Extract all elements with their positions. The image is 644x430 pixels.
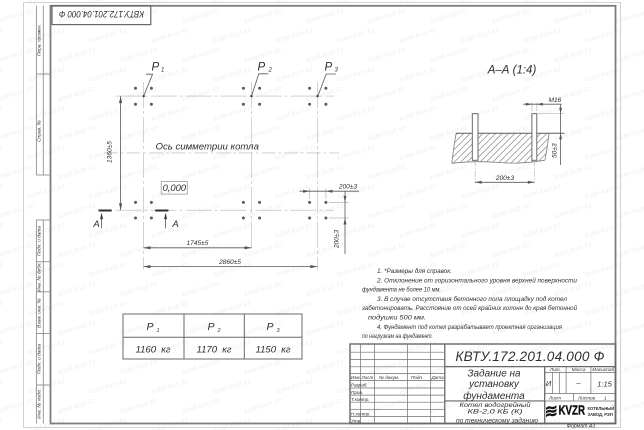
svg-text:1:15: 1:15: [597, 380, 612, 389]
svg-text:Н.контр.: Н.контр.: [351, 412, 370, 417]
svg-text:1: 1: [157, 328, 160, 334]
svg-text:Взам. инв. №: Взам. инв. №: [36, 298, 42, 328]
svg-text:200±3: 200±3: [495, 175, 515, 182]
svg-text:Котел водогрейный: Котел водогрейный: [460, 402, 532, 409]
svg-text:1. *Размеры для справок.: 1. *Размеры для справок.: [377, 267, 452, 275]
svg-text:Подп. и дата: Подп. и дата: [36, 344, 42, 374]
svg-text:Лист: Лист: [361, 375, 374, 380]
svg-text:P: P: [258, 61, 266, 73]
svg-text:Дата: Дата: [431, 375, 445, 380]
svg-text:1745±5: 1745±5: [187, 240, 209, 247]
svg-text:P: P: [146, 321, 153, 333]
svg-text:фундамента: фундамента: [463, 390, 525, 402]
svg-text:Масса: Масса: [572, 367, 586, 372]
svg-text:Инв. № дубл.: Инв. № дубл.: [36, 262, 42, 292]
svg-text:1: 1: [604, 395, 607, 400]
svg-text:4. Фундамент под котел разраба: 4. Фундамент под котел разрабатывает про…: [377, 323, 562, 331]
svg-text:200±3: 200±3: [334, 230, 341, 250]
svg-text:2: 2: [217, 328, 221, 334]
svg-text:А: А: [171, 218, 178, 229]
svg-text:0,000: 0,000: [163, 182, 187, 193]
svg-text:ЗАВОД, РЭП: ЗАВОД, РЭП: [588, 412, 613, 417]
svg-text:Листов: Листов: [577, 395, 596, 400]
svg-text:Задание на: Задание на: [467, 369, 521, 380]
svg-text:А–А (1:4): А–А (1:4): [487, 65, 537, 77]
svg-text:Подп.: Подп.: [411, 375, 423, 380]
svg-text:фундамента не более 10 мм.: фундамента не более 10 мм.: [362, 286, 441, 294]
svg-text:подушки 500 мм.: подушки 500 мм.: [368, 314, 426, 322]
svg-text:Утв.: Утв.: [351, 418, 361, 423]
svg-text:1170 кг: 1170 кг: [196, 345, 231, 356]
svg-text:по техническому заданию: по техническому заданию: [456, 418, 539, 424]
svg-text:КВТУ.172.201.04.000 Ф: КВТУ.172.201.04.000 Ф: [59, 9, 144, 19]
svg-text:1360±5: 1360±5: [107, 141, 114, 163]
svg-text:2: 2: [268, 68, 273, 74]
svg-text:Инв. № подл.: Инв. № подл.: [36, 389, 42, 419]
svg-text:50±3: 50±3: [552, 143, 559, 158]
svg-text:2860±5: 2860±5: [218, 259, 241, 266]
svg-text:1: 1: [161, 68, 164, 74]
svg-text:Т.контр.: Т.контр.: [351, 397, 370, 402]
svg-text:KVZR: KVZR: [559, 403, 586, 418]
svg-text:А: А: [92, 218, 99, 229]
svg-text:КВ-2,0 КБ (К): КВ-2,0 КБ (К): [468, 410, 523, 416]
svg-text:№ докум.: № докум.: [379, 375, 399, 380]
svg-text:1160 кг: 1160 кг: [135, 345, 170, 356]
svg-text:Лист: Лист: [548, 395, 561, 400]
svg-text:–: –: [575, 378, 581, 387]
svg-text:P: P: [207, 321, 214, 333]
svg-text:Справ. №: Справ. №: [36, 120, 42, 142]
svg-text:Формат А3: Формат А3: [567, 424, 595, 430]
svg-text:200±3: 200±3: [338, 184, 358, 191]
svg-text:И: И: [546, 379, 552, 388]
svg-text:Масштаб: Масштаб: [592, 367, 614, 372]
svg-text:Ось симметрии котла: Ось симметрии котла: [156, 141, 259, 152]
svg-text:установку: установку: [468, 379, 520, 390]
svg-text:P: P: [266, 321, 273, 333]
svg-text:Перв. примен.: Перв. примен.: [36, 24, 42, 56]
svg-text:КОТЕЛЬНЫЙ: КОТЕЛЬНЫЙ: [588, 406, 615, 411]
svg-text:Разраб.: Разраб.: [351, 383, 368, 388]
svg-text:Лит.: Лит.: [549, 367, 561, 372]
svg-text:P: P: [152, 61, 160, 73]
svg-text:КВТУ.172.201.04.000 Ф: КВТУ.172.201.04.000 Ф: [455, 349, 604, 364]
svg-text:по нагрузкам на фундамент.: по нагрузкам на фундамент.: [362, 332, 433, 340]
svg-text:2. Отклонение от горизонтально: 2. Отклонение от горизонтального уровня …: [376, 276, 577, 284]
svg-text:3. В случае отсутствия бетонно: 3. В случае отсутствия бетонного пола пл…: [377, 295, 567, 303]
svg-text:Пров.: Пров.: [351, 390, 363, 395]
svg-text:P: P: [325, 61, 333, 73]
svg-text:1150 кг: 1150 кг: [255, 345, 290, 356]
svg-text:Подп. и дата: Подп. и дата: [36, 226, 42, 256]
svg-text:Изм.: Изм.: [351, 375, 361, 380]
svg-text:забетонировать. Расстояние от: забетонировать. Расстояние от осей крайн…: [361, 304, 577, 312]
svg-text:М16: М16: [549, 97, 562, 104]
